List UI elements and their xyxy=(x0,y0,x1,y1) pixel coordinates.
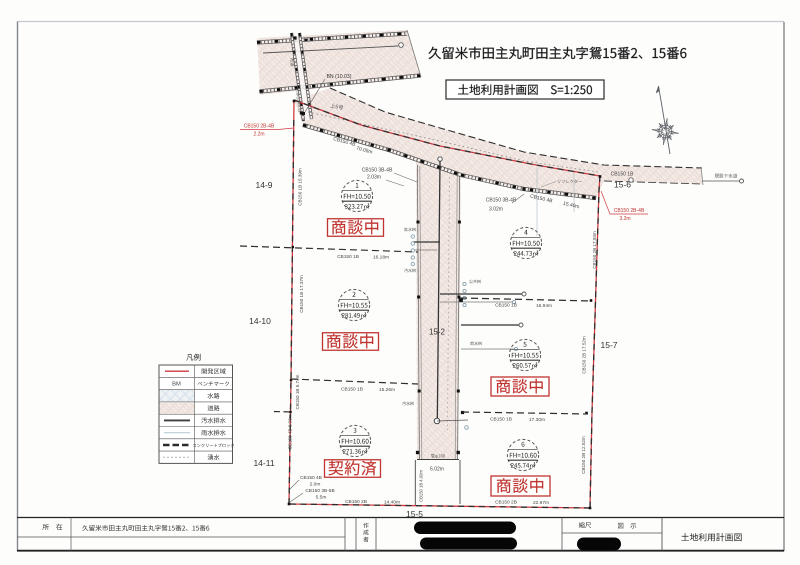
svg-text:CB150 1B: CB150 1B xyxy=(490,417,512,423)
svg-text:CB150 2B 12.52m: CB150 2B 12.52m xyxy=(581,436,586,474)
svg-text:CB150 2B: CB150 2B xyxy=(345,499,367,505)
svg-text:14-10: 14-10 xyxy=(249,316,271,326)
svg-text:CB150 2B: CB150 2B xyxy=(495,500,517,506)
svg-text:CB150 3B-5B: CB150 3B-5B xyxy=(305,488,334,494)
svg-text:CB150 4B 6.00m: CB150 4B 6.00m xyxy=(288,414,293,449)
svg-text:2.2m: 2.2m xyxy=(253,132,264,138)
svg-text:15-6: 15-6 xyxy=(614,180,631,190)
svg-text:16.94m: 16.94m xyxy=(536,303,552,309)
svg-text:CB150 2B-4B: CB150 2B-4B xyxy=(614,208,645,214)
svg-text:15.26m: 15.26m xyxy=(379,387,395,393)
svg-text:6.02m: 6.02m xyxy=(430,467,444,473)
svg-text:CB150 1B: CB150 1B xyxy=(337,254,359,260)
svg-text:CB150 1B: CB150 1B xyxy=(495,303,517,309)
svg-text:14-9: 14-9 xyxy=(255,180,272,190)
svg-text:BN (10.03): BN (10.03) xyxy=(326,74,351,80)
svg-text:22.97m: 22.97m xyxy=(533,500,549,506)
svg-text:CB150 1B: CB150 1B xyxy=(341,387,363,393)
svg-text:CB150 4B: CB150 4B xyxy=(300,475,322,481)
svg-text:CB150 2B 17.93m: CB150 2B 17.93m xyxy=(592,231,597,269)
svg-text:CB150 1B 17.37m: CB150 1B 17.37m xyxy=(299,275,304,313)
svg-text:CB150 1B 5.74m: CB150 1B 5.74m xyxy=(295,374,300,409)
svg-text:2.03m: 2.03m xyxy=(367,175,381,181)
svg-text:CB150 2B-4B: CB150 2B-4B xyxy=(244,124,275,130)
svg-text:BM: BM xyxy=(172,382,181,388)
svg-text:16.18m: 16.18m xyxy=(373,255,389,261)
svg-text:3.2m: 3.2m xyxy=(619,216,630,222)
svg-text:14.40m: 14.40m xyxy=(384,500,400,506)
svg-text:14-11: 14-11 xyxy=(253,458,274,468)
svg-text:CB150 2B 17.52m: CB150 2B 17.52m xyxy=(582,336,587,374)
svg-text:17.30m: 17.30m xyxy=(529,417,545,423)
svg-text:5.5m: 5.5m xyxy=(316,495,327,501)
svg-text:15-7: 15-7 xyxy=(600,340,617,350)
svg-text:CB150 1B: CB150 1B xyxy=(611,172,634,178)
svg-text:CB150 1B 15.39m: CB150 1B 15.39m xyxy=(298,168,303,206)
svg-text:2.0m: 2.0m xyxy=(310,482,321,488)
svg-text:CB150 3B-4B: CB150 3B-4B xyxy=(362,168,393,174)
svg-text:CB150 1B 4.00m: CB150 1B 4.00m xyxy=(419,470,424,502)
svg-text:15-2: 15-2 xyxy=(429,328,446,337)
svg-text:3.02m: 3.02m xyxy=(489,207,503,213)
